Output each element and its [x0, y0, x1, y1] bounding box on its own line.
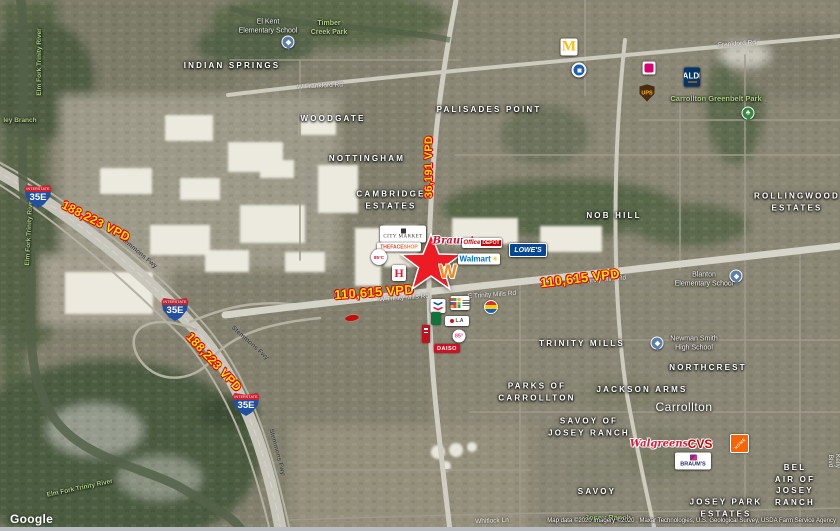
office-text: Office — [463, 240, 480, 246]
city-market-text: CITY MARKET — [383, 235, 422, 240]
bank-circle-icon — [574, 65, 585, 76]
aldi-stripes — [688, 81, 697, 83]
la-restaurant-logo: L.A — [445, 316, 469, 326]
braums-text: BRAUM'S — [680, 462, 705, 468]
hmart-logo: H — [392, 265, 406, 281]
office-depot-logo: Office DEPOT — [462, 238, 502, 248]
bank-logo — [572, 63, 587, 78]
daiso-logo: DAISO — [434, 344, 460, 353]
cvs-text: CVS — [688, 437, 713, 451]
hmart-letter: H — [394, 266, 403, 281]
whataburger-logo: W — [439, 262, 457, 284]
bottom-edge-bar — [0, 527, 840, 531]
braums-icon — [690, 455, 697, 461]
walmart-logo: Walmart ✶ — [458, 254, 500, 265]
walgreens-logo: Walgreens — [630, 439, 689, 450]
pin-tip — [285, 46, 291, 54]
city-market-icon — [401, 229, 406, 234]
home-depot-logo: HOME — [730, 434, 749, 453]
school-pin-blanton[interactable] — [730, 270, 743, 283]
depot-text: DEPOT — [481, 240, 500, 246]
aldi-logo: ALDI — [684, 68, 700, 87]
magenta-store-logo — [643, 62, 656, 75]
korean-vertical-sign-logo — [422, 325, 430, 343]
color-grid-icon — [451, 298, 461, 308]
map-attribution: Map data ©2020 Imagery ©2020 , Maxar Tec… — [547, 518, 836, 524]
korean-market-logo — [451, 296, 470, 310]
la-text: L.A — [455, 318, 463, 324]
pin-tip — [745, 117, 751, 125]
85c-bakery-cafe-logo: 85°C — [371, 249, 387, 265]
lowes-text: LOWE'S — [514, 247, 541, 254]
daiso-text: DAISO — [437, 346, 457, 352]
mcdonalds-logo: M — [561, 39, 578, 56]
tricolor-restaurant-logo — [484, 300, 498, 314]
faceshop-text-2: SHOP — [404, 244, 418, 250]
lowes-logo: LOWE'S — [509, 243, 547, 257]
whataburger-w: W — [439, 262, 457, 283]
magenta-icon — [645, 64, 654, 73]
green-sign-logo — [431, 312, 441, 325]
tree-icon: ♣ — [746, 110, 751, 117]
pin-tip — [733, 280, 739, 288]
braums-logo: BRAUM'S — [675, 453, 711, 470]
85-degrees-logo: 85° — [453, 330, 466, 343]
chevron-red-icon — [434, 307, 443, 311]
faceshop-text-1: THEFACE — [380, 244, 403, 250]
school-pin-glyph — [733, 273, 739, 279]
city-market-logo: CITY MARKET — [380, 226, 426, 243]
chevron-logo — [431, 299, 446, 313]
pin-tip — [654, 347, 660, 355]
85-text: 85° — [455, 333, 463, 339]
school-pin-el-kent[interactable] — [282, 36, 295, 49]
school-pin-newman-smith[interactable] — [651, 337, 664, 350]
school-pin-glyph — [654, 340, 660, 346]
walgreens-text: Walgreens — [630, 439, 689, 450]
aerial-map[interactable]: INDIAN SPRINGS WOODGATE NOTTINGHAM CAMBR… — [0, 0, 840, 531]
red-dot-icon — [450, 319, 454, 323]
school-pin-glyph — [285, 39, 291, 45]
korean-text-bars — [462, 300, 470, 307]
ups-shield-text: UPS — [641, 90, 652, 96]
cvs-logo: CVS — [688, 437, 713, 451]
walmart-spark-icon: ✶ — [492, 255, 499, 264]
park-pin-greenbelt[interactable]: ♣ — [742, 107, 755, 120]
golden-arches-icon: M — [562, 39, 576, 56]
google-watermark[interactable]: Google — [10, 512, 53, 526]
aldi-letter: ALDI — [684, 71, 700, 80]
walmart-text: Walmart — [460, 255, 491, 264]
85c-text: 85°C — [374, 255, 384, 260]
chevron-blue-icon — [434, 302, 443, 306]
home-depot-text: HOME — [733, 437, 746, 450]
